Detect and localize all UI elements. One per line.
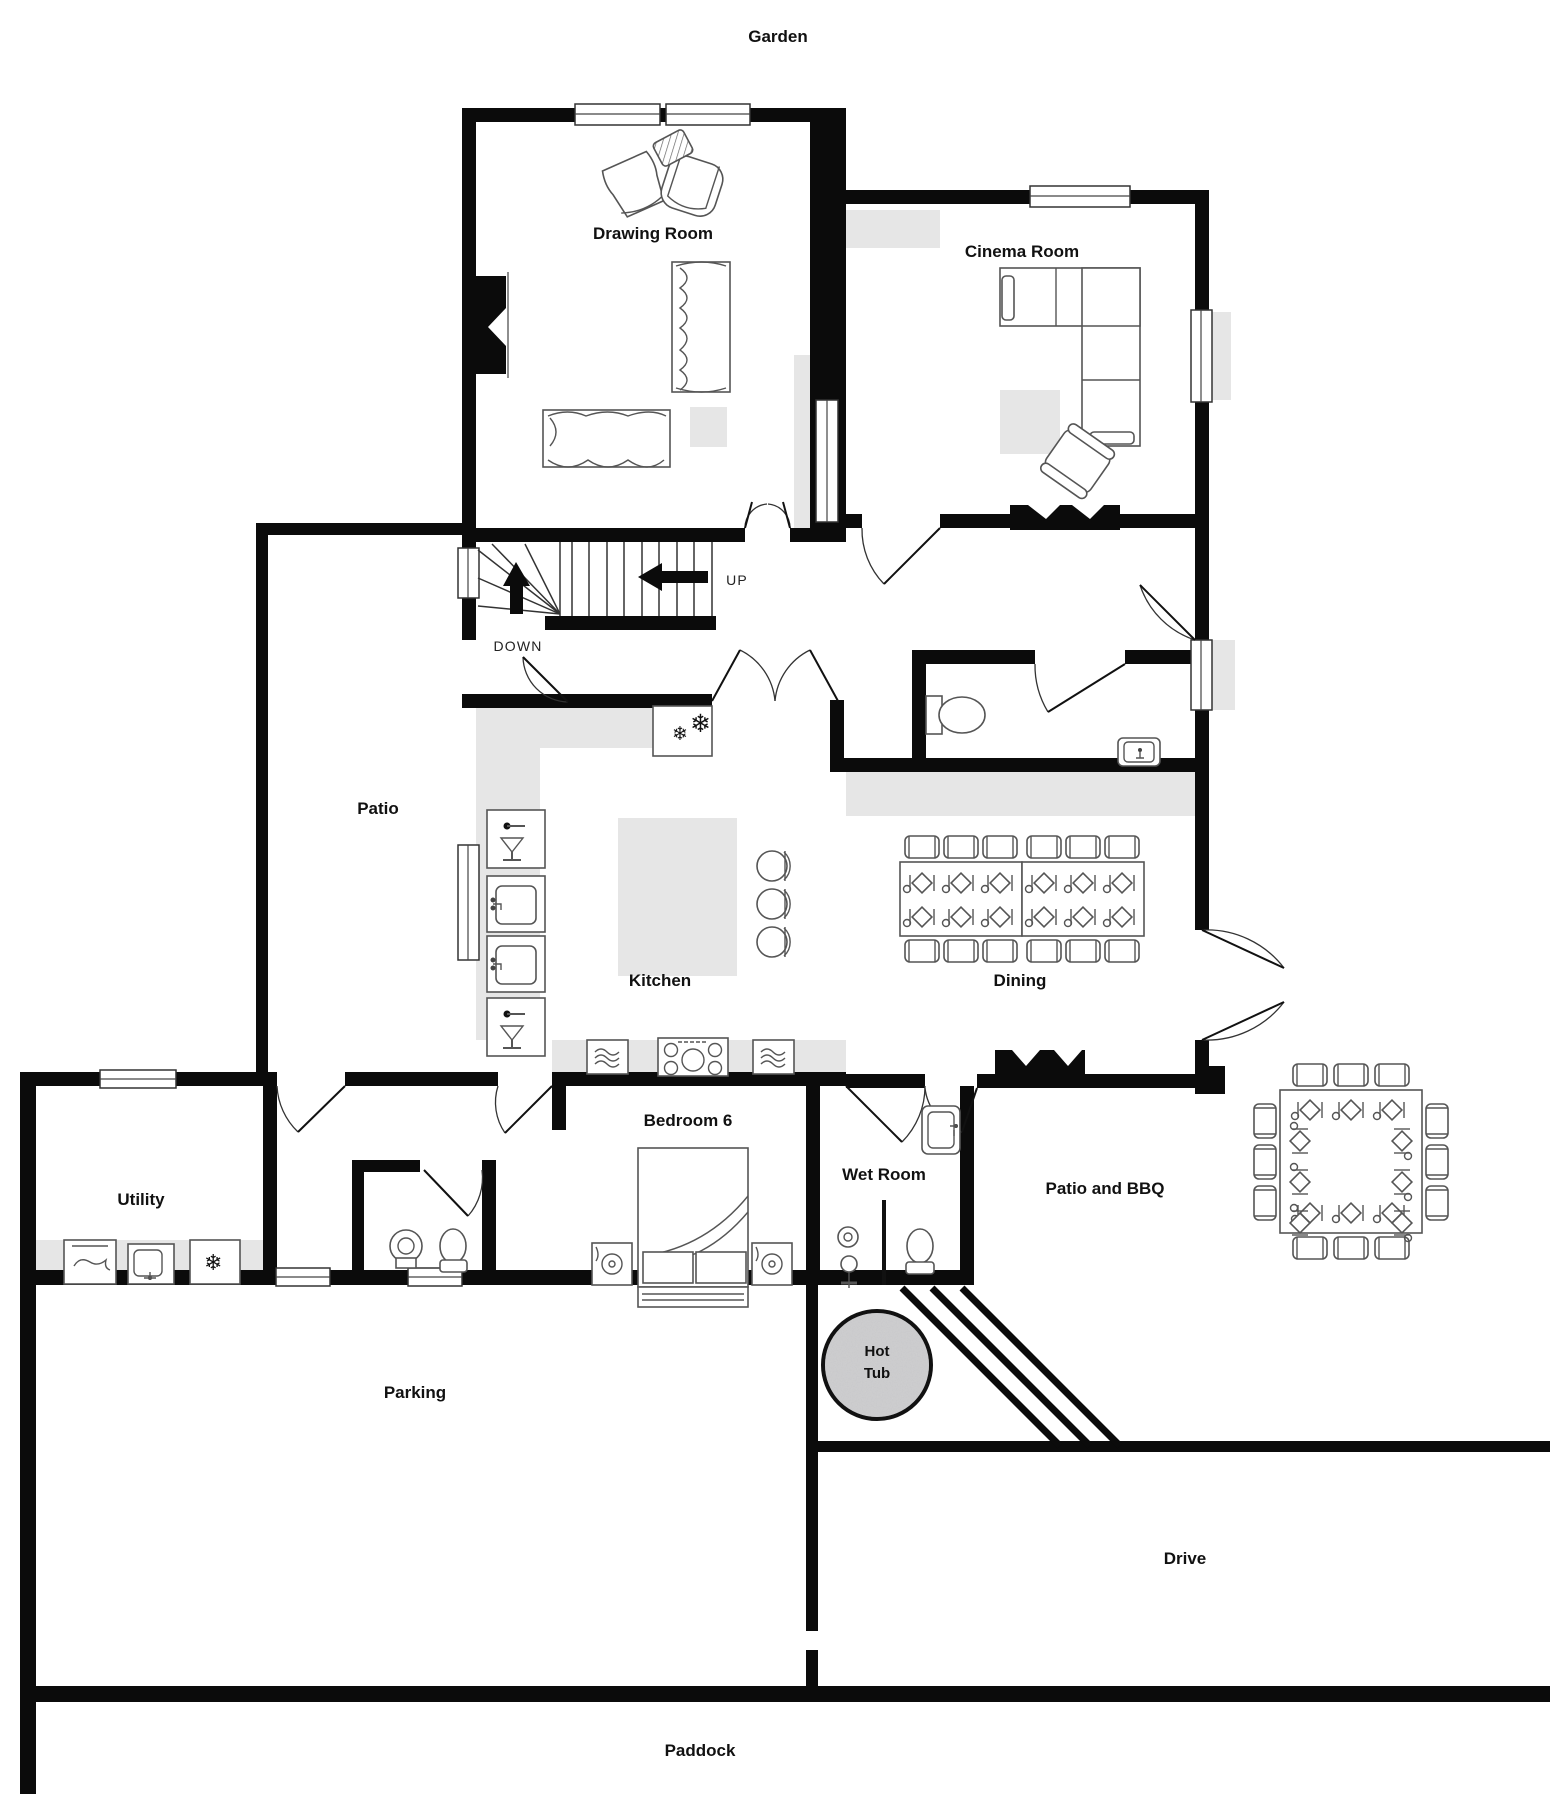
window [1030, 186, 1130, 207]
dining-chair-icon [944, 940, 978, 962]
wine-sink-icon [487, 998, 545, 1056]
dining-chair-icon [1066, 940, 1100, 962]
window [276, 1268, 330, 1286]
shower-head-icon [838, 1227, 858, 1247]
outdoor-chair-icon [1293, 1064, 1327, 1086]
doormat-icon [638, 1287, 748, 1307]
dining-chair-icon [905, 940, 939, 962]
shaded-zones [36, 210, 1235, 1270]
cinema-room-label: Cinema Room [965, 242, 1079, 261]
bar-stool-icon [757, 851, 790, 881]
window [458, 548, 479, 598]
utility-fittings: ❄ [64, 1240, 240, 1284]
outdoor-chair-icon [1375, 1237, 1409, 1259]
oven-icon [753, 1040, 794, 1074]
sink-icon [487, 876, 545, 932]
outdoor-dining-set [1254, 1064, 1448, 1259]
tv-unit-icon [1010, 505, 1120, 530]
utility-label: Utility [117, 1190, 165, 1209]
dining-chair-icon [1105, 836, 1139, 858]
outdoor-chair-icon [1375, 1064, 1409, 1086]
dining-chair-icon [944, 836, 978, 858]
toilet-icon [926, 696, 985, 734]
down-label: DOWN [493, 638, 542, 654]
outdoor-chair-icon [1254, 1186, 1276, 1220]
up-direction-arrow-icon [638, 563, 708, 591]
window [1191, 640, 1212, 710]
garden-label: Garden [748, 27, 808, 46]
dining-chair-icon [1027, 836, 1061, 858]
bbq-fireplace-icon [995, 1050, 1085, 1076]
outdoor-chair-icon [1426, 1145, 1448, 1179]
dining-chair-icon [983, 940, 1017, 962]
freezer-icon: ❄ [190, 1240, 240, 1284]
toilet-icon [906, 1229, 934, 1274]
outdoor-chair-icon [1254, 1145, 1276, 1179]
window [1191, 310, 1212, 402]
drive-label: Drive [1164, 1549, 1207, 1568]
snowflake-icon: ❄ [672, 724, 688, 745]
pedestal-basin-icon [390, 1230, 422, 1268]
kitchen-label: Kitchen [629, 971, 691, 990]
bathroom-fixtures [390, 1229, 467, 1272]
bar-stool-icon [757, 927, 790, 957]
wc-fixtures [926, 696, 1160, 766]
basin-icon [1118, 738, 1160, 766]
patio-and-bbq-label: Patio and BBQ [1045, 1179, 1164, 1198]
dining-chair-icon [1027, 940, 1061, 962]
glazed-panel [816, 400, 838, 522]
hob-icon [658, 1038, 728, 1076]
dining-chair-icon [905, 836, 939, 858]
bedside-table-icon [592, 1243, 632, 1285]
bedroom-furniture [592, 1148, 792, 1307]
sofa-icon [543, 410, 670, 467]
window [100, 1070, 176, 1088]
wet-room-label: Wet Room [842, 1165, 926, 1184]
snowflake-icon: ❄ [690, 710, 711, 738]
outdoor-chair-icon [1254, 1104, 1276, 1138]
snowflake-icon: ❄ [204, 1250, 222, 1275]
dining-furniture [900, 836, 1144, 1076]
basin-icon [922, 1106, 960, 1154]
window [575, 104, 660, 125]
washing-machine-icon [64, 1240, 116, 1284]
wine-sink-icon [487, 810, 545, 868]
bedroom-6-label: Bedroom 6 [644, 1111, 733, 1130]
outdoor-chair-icon [1334, 1064, 1368, 1086]
bed-icon [638, 1148, 748, 1287]
armchair-icon [601, 151, 670, 220]
window [458, 845, 479, 960]
up-label: UP [726, 572, 748, 588]
sofa-icon [672, 262, 730, 392]
window [666, 104, 750, 125]
fridge-freezer-icon: ❄ ❄ [653, 706, 712, 756]
outdoor-chair-icon [1426, 1104, 1448, 1138]
toilet-icon [440, 1229, 467, 1272]
bedside-table-icon [752, 1243, 792, 1285]
dining-label: Dining [994, 971, 1047, 990]
drawing-room-label: Drawing Room [593, 224, 713, 243]
wet-room-fixtures [838, 1106, 960, 1288]
sink-icon [128, 1244, 174, 1284]
outdoor-steps [902, 1288, 1120, 1446]
outdoor-chair-icon [1426, 1186, 1448, 1220]
hot-tub-label-line2: Tub [864, 1365, 890, 1382]
dining-chair-icon [1066, 836, 1100, 858]
dining-chair-icon [1105, 940, 1139, 962]
paddock-label: Paddock [665, 1741, 736, 1760]
hot-tub-label-line1: Hot [865, 1343, 890, 1360]
bar-stool-icon [757, 889, 790, 919]
patio-label: Patio [357, 799, 399, 818]
floor-plan-drawing: ❄ ❄ [0, 0, 1550, 1794]
sink-icon [487, 936, 545, 992]
floor-plan: ❄ ❄ [0, 0, 1550, 1794]
outdoor-chair-icon [1334, 1237, 1368, 1259]
outdoor-chair-icon [1293, 1237, 1327, 1259]
staircase [478, 542, 712, 616]
parking-label: Parking [384, 1383, 446, 1402]
oven-icon [587, 1040, 628, 1074]
dining-chair-icon [983, 836, 1017, 858]
